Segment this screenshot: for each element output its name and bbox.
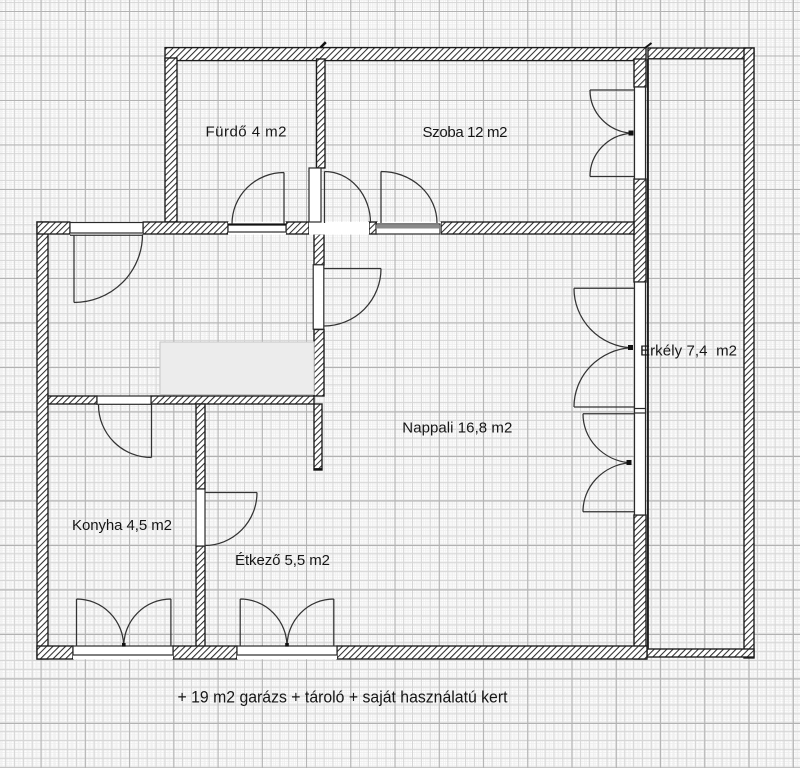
svg-text:Fürdő 4 m2: Fürdő 4 m2 (206, 124, 287, 141)
svg-text:+ 19 m2 garázs + tároló + sajá: + 19 m2 garázs + tároló + saját használa… (178, 689, 508, 707)
svg-text:Nappali 16,8 m2: Nappali 16,8 m2 (402, 420, 512, 437)
svg-text:Konyha 4,5 m2: Konyha 4,5 m2 (72, 517, 172, 534)
svg-text:Étkező 5,5 m2: Étkező 5,5 m2 (235, 552, 330, 569)
svg-text:Erkély 7,4 m2: Erkély 7,4 m2 (640, 343, 737, 360)
svg-text:Szoba 12 m2: Szoba 12 m2 (423, 124, 508, 141)
